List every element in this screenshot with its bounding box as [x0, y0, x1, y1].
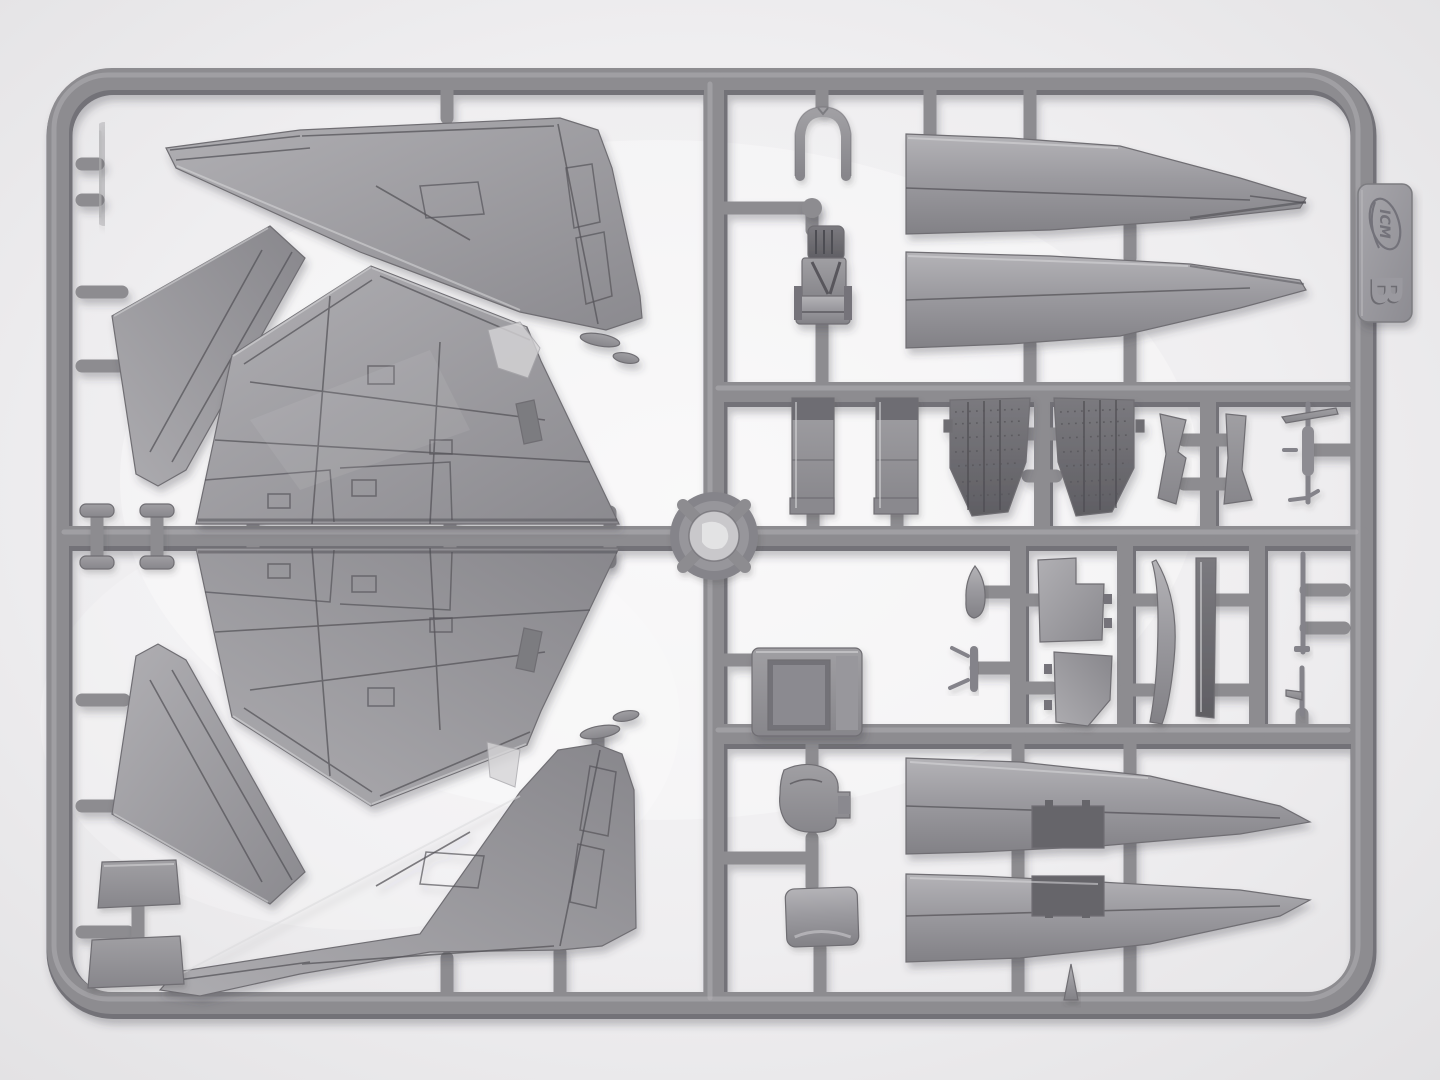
sprue-photo: ICM B B — [0, 0, 1440, 1080]
